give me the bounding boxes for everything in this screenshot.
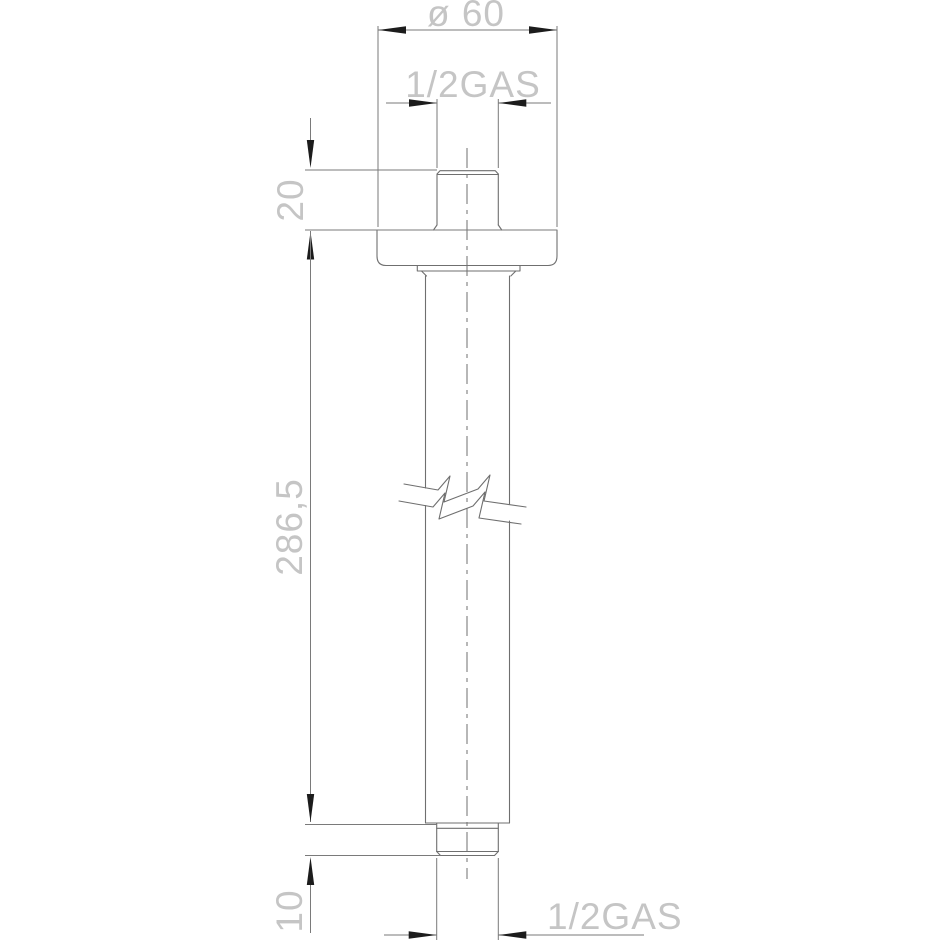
arrowhead-up: [307, 857, 314, 885]
dim-label-flange-offset: 20: [270, 178, 311, 221]
drawing-canvas: ø 60 1/2GAS 20 286,5 10 1/2GAS: [0, 0, 940, 940]
dim-flange-offset: 20: [270, 118, 437, 260]
dim-top-thread: 1/2GAS: [386, 64, 551, 168]
arrowhead-left: [409, 931, 437, 938]
break-symbol: [399, 475, 526, 524]
technical-drawing: ø 60 1/2GAS 20 286,5 10 1/2GAS: [0, 0, 940, 940]
extension-lines: [437, 99, 498, 168]
dim-bottom-thread-length: 10: [269, 856, 441, 934]
arrowhead-down: [307, 794, 314, 822]
arrowhead-right: [498, 931, 526, 938]
dim-label-bottom-thread: 1/2GAS: [547, 896, 683, 937]
break-line-upper: [404, 475, 526, 507]
flange-collar: [417, 266, 520, 277]
dim-label-flange-diameter: ø 60: [427, 0, 505, 34]
dim-label-bottom-thread-length: 10: [269, 889, 310, 932]
dim-label-arm-length: 286,5: [269, 478, 310, 576]
dim-arm-length: 286,5: [269, 230, 557, 825]
arrowhead-right: [529, 26, 557, 33]
break-line-lower: [399, 492, 521, 524]
dim-bottom-thread: 1/2GAS: [384, 858, 683, 940]
dim-label-top-thread: 1/2GAS: [405, 64, 541, 105]
top-thread-nipple: [434, 171, 502, 230]
part-outline: [377, 148, 557, 879]
arrowhead-left: [378, 26, 406, 33]
arrowhead-down: [307, 140, 314, 168]
